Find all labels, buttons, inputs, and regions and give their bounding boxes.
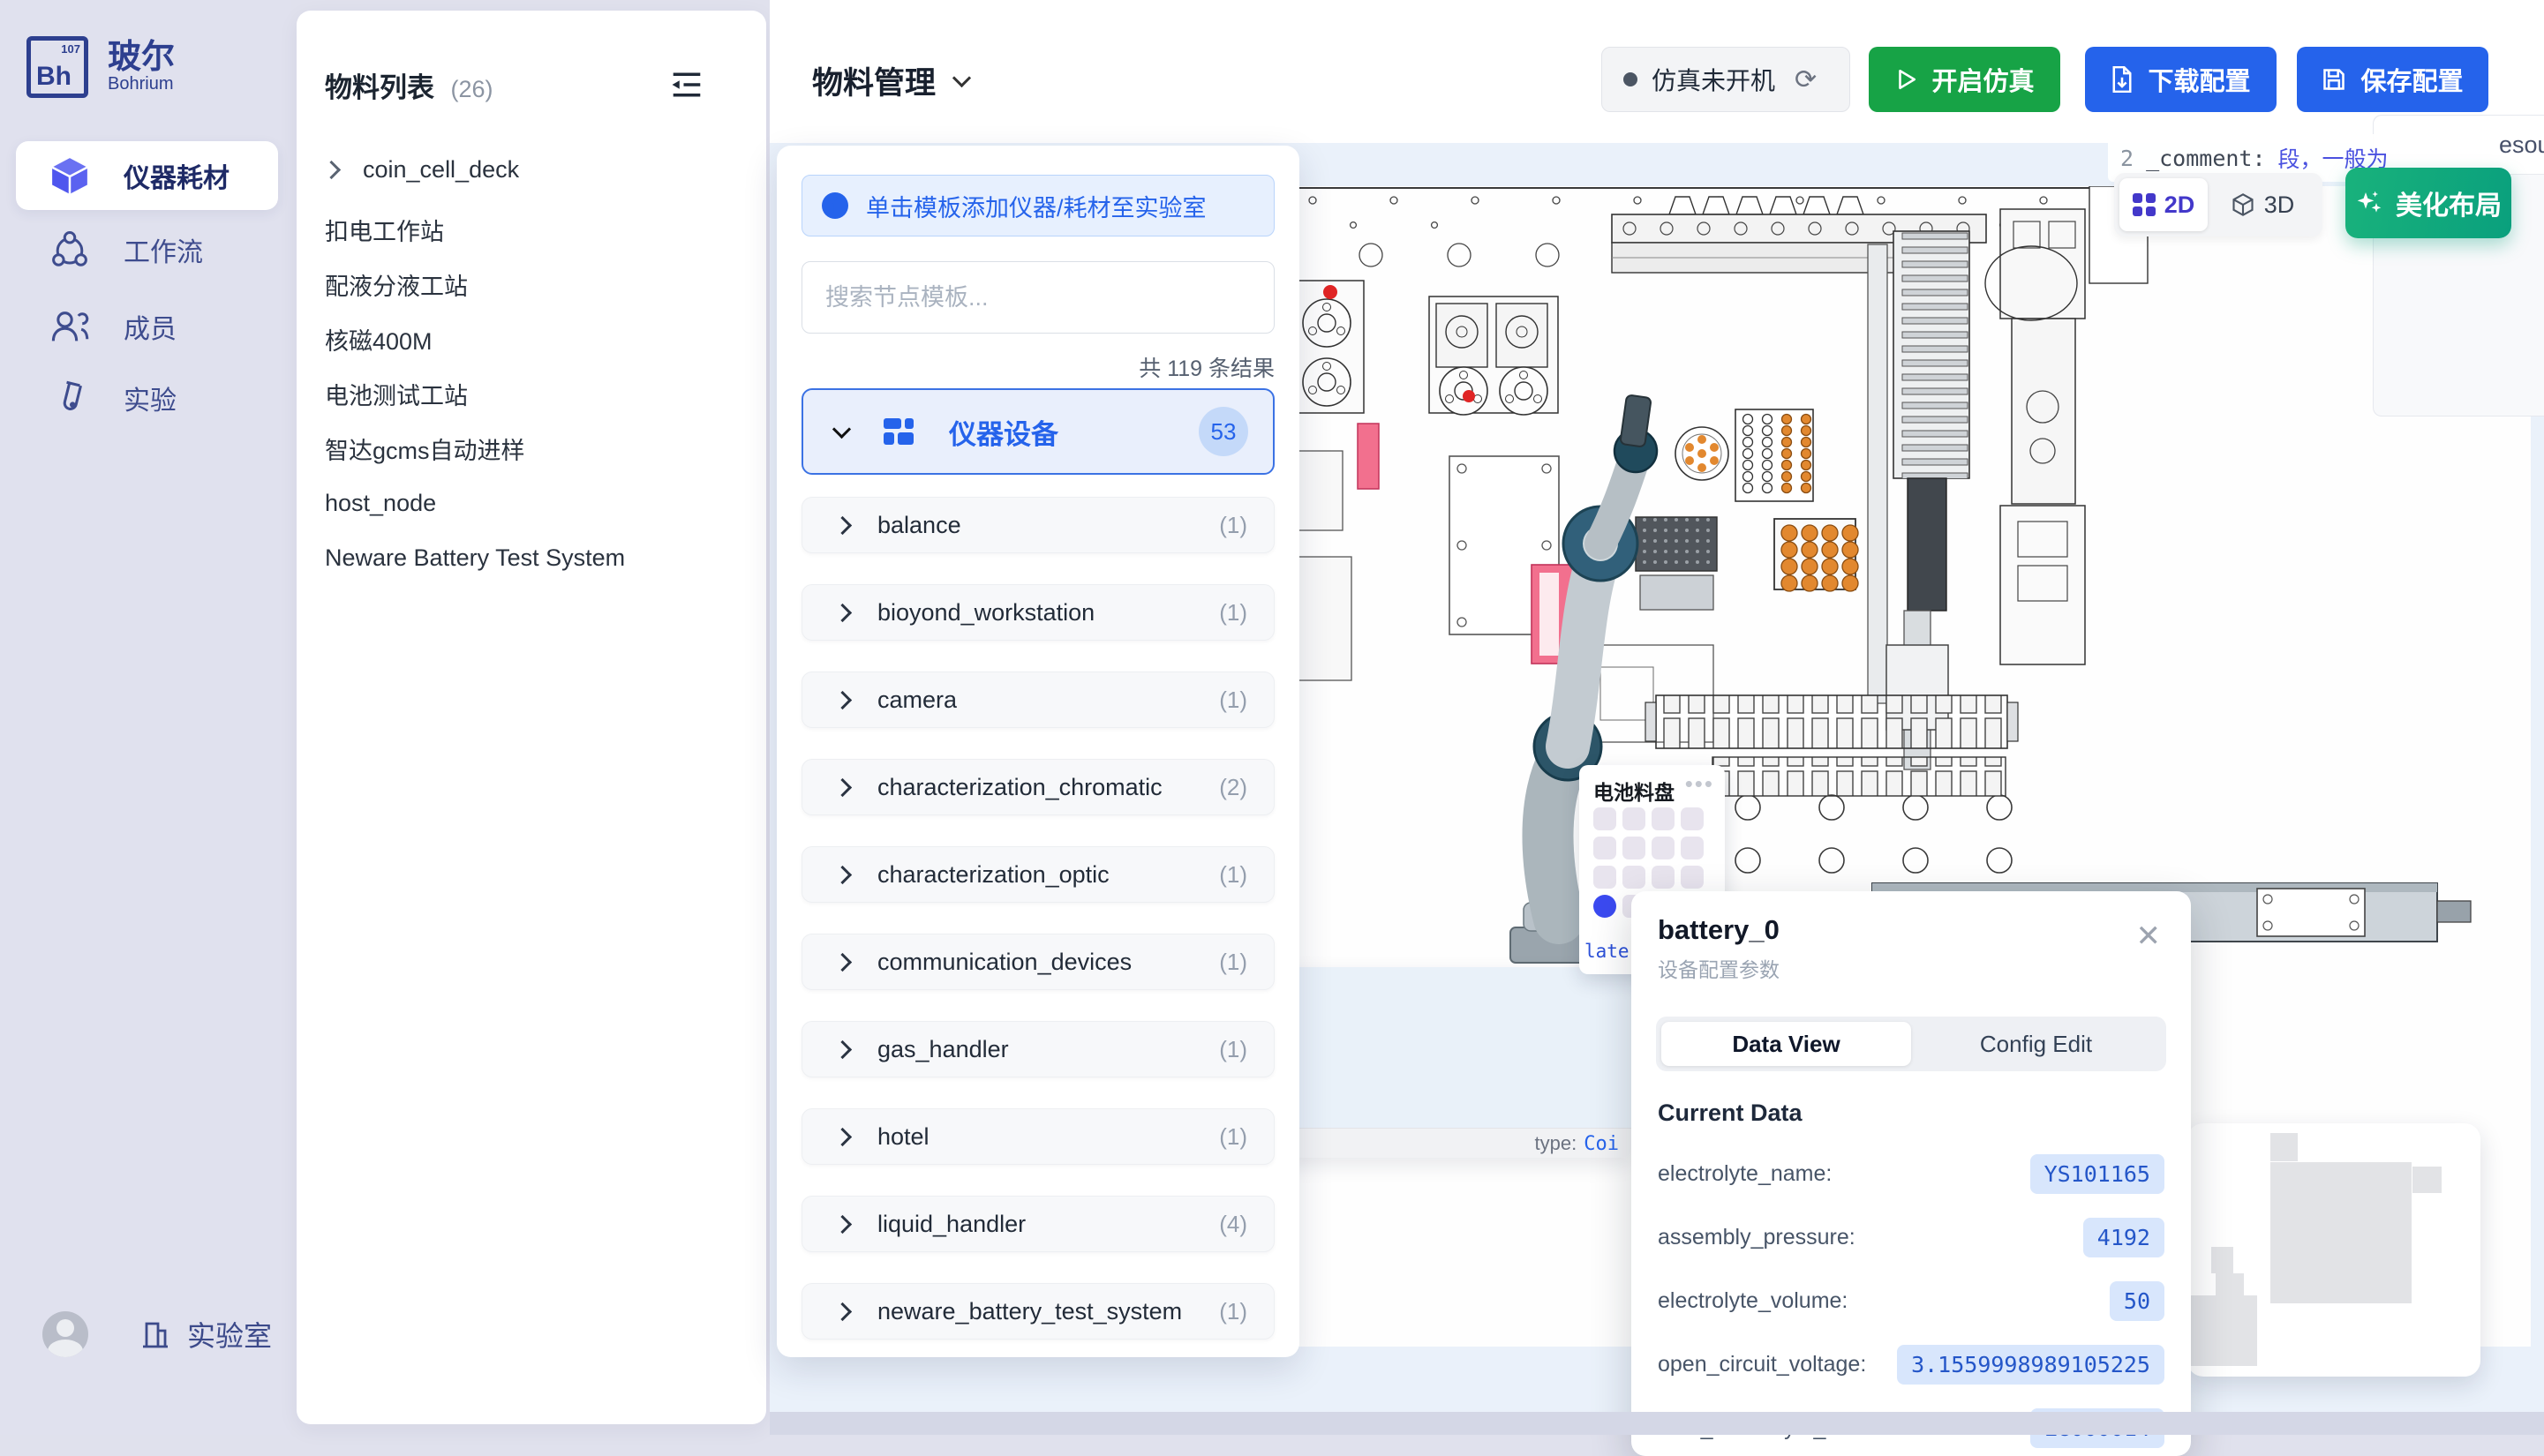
minimap-block <box>2211 1247 2233 1273</box>
view-3d-button[interactable]: 3D <box>2208 191 2317 219</box>
material-label: 配液分液工站 <box>325 267 468 302</box>
brand-name-en: Bohrium <box>108 74 175 94</box>
page-title-dropdown[interactable]: 物料管理 <box>812 58 968 103</box>
materials-title: 物料列表 <box>325 72 434 103</box>
material-item[interactable]: 电池测试工站 <box>300 371 741 417</box>
tray-title: 电池料盘 <box>1593 776 1675 806</box>
result-count: 共 119 条结果 <box>1139 351 1275 383</box>
material-label: host_node <box>325 490 436 517</box>
card-title: battery_0 <box>1658 914 1780 946</box>
material-item[interactable]: 配液分液工站 <box>300 261 741 307</box>
data-row: assembly_pressure:4192 <box>1658 1216 2164 1258</box>
chevron-right-icon <box>322 160 341 178</box>
play-icon <box>1894 68 1917 91</box>
sidebar-item-members[interactable]: 成员 <box>16 292 278 361</box>
cube-3d-icon <box>2231 192 2255 217</box>
sidebar-item-label: 实验 <box>124 379 177 417</box>
logo-symbol: Bh <box>36 62 72 92</box>
template-item[interactable]: bioyond_workstation(1) <box>802 584 1275 641</box>
section-title: Current Data <box>1658 1100 1803 1127</box>
bottom-scrollbar <box>770 1412 2544 1435</box>
tooltip-body <box>1278 967 1631 1128</box>
chevron-right-icon <box>833 690 852 709</box>
sidebar-item-workflow[interactable]: 工作流 <box>16 215 278 284</box>
chevron-right-icon <box>833 865 852 883</box>
minimap-block <box>2270 1162 2412 1303</box>
material-item[interactable]: 核磁400M <box>300 316 741 362</box>
close-icon[interactable]: ✕ <box>2136 921 2162 951</box>
material-item-coin-cell-deck[interactable]: coin_cell_deck <box>300 146 741 192</box>
template-item[interactable]: hotel(1) <box>802 1108 1275 1165</box>
info-icon: i <box>822 192 848 219</box>
tray-slot[interactable] <box>1622 866 1645 889</box>
more-menu-icon[interactable]: ••• <box>1685 770 1714 798</box>
logo-number: 107 <box>61 42 80 56</box>
category-label: 仪器设备 <box>949 412 1058 452</box>
card-subtitle: 设备配置参数 <box>1658 953 1780 983</box>
tray-slot[interactable] <box>1593 837 1616 859</box>
type-value: Coi <box>1584 1133 1619 1155</box>
type-key: type: <box>1535 1132 1577 1155</box>
material-label: 智达gcms自动进样 <box>325 432 525 466</box>
resources-panel-text: esou <box>2499 131 2544 159</box>
tab-config-edit[interactable]: Config Edit <box>1911 1022 2161 1066</box>
sidebar-item-label: 成员 <box>124 307 177 346</box>
template-panel: i 单击模板添加仪器/耗材至实验室 共 119 条结果 仪器设备 53 bala… <box>777 146 1299 1357</box>
lab-switcher[interactable]: 实验室 <box>138 1314 272 1355</box>
category-icon <box>884 418 914 445</box>
brand-name-zh: 玻尔 <box>108 41 175 74</box>
bohrium-logo-icon: 107 Bh <box>26 36 88 98</box>
minimap-block <box>2188 1295 2257 1366</box>
page-title: 物料管理 <box>812 58 936 103</box>
resources-panel-clipped: esou <box>2373 115 2544 417</box>
refresh-icon[interactable]: ⟳ <box>1795 64 1817 95</box>
workflow-icon <box>49 229 90 270</box>
tray-slot[interactable] <box>1593 866 1616 889</box>
lab-label: 实验室 <box>187 1314 272 1355</box>
start-simulation-button[interactable]: 开启仿真 <box>1869 47 2060 112</box>
save-icon <box>2322 67 2346 92</box>
template-item[interactable]: neware_battery_test_system(1) <box>802 1283 1275 1340</box>
node-hover-tooltip: type: Coi <box>1278 967 1631 1158</box>
chevron-right-icon <box>833 952 852 971</box>
material-item[interactable]: host_node <box>300 480 741 526</box>
chevron-right-icon <box>833 1214 852 1233</box>
save-config-button[interactable]: 保存配置 <box>2297 47 2488 112</box>
category-count-badge: 53 <box>1199 407 1248 456</box>
user-avatar[interactable] <box>42 1311 88 1357</box>
material-label: coin_cell_deck <box>363 156 519 184</box>
comment-key: _comment: <box>2146 146 2265 171</box>
minimap-block <box>2216 1273 2244 1295</box>
tray-slot[interactable] <box>1681 866 1704 889</box>
template-item[interactable]: camera(1) <box>802 672 1275 728</box>
value-pill: 50 <box>2110 1281 2164 1321</box>
chevron-right-icon <box>833 1302 852 1320</box>
material-label: 扣电工作站 <box>325 213 444 247</box>
sidebar-item-instruments[interactable]: 仪器耗材 <box>16 141 278 210</box>
tab-data-view[interactable]: Data View <box>1661 1022 1911 1066</box>
simulation-status-pill: 仿真未开机 ⟳ <box>1601 47 1850 112</box>
chevron-down-icon <box>952 69 971 87</box>
tray-slot-selected[interactable] <box>1593 895 1616 918</box>
grid-2d-icon <box>2133 193 2156 216</box>
sidebar-item-label: 仪器耗材 <box>124 156 230 195</box>
data-row: electrolyte_name:YS101165 <box>1658 1152 2164 1195</box>
brand-logo: 107 Bh 玻尔 Bohrium <box>26 32 274 102</box>
info-banner: i 单击模板添加仪器/耗材至实验室 <box>802 175 1275 236</box>
tray-slot[interactable] <box>1622 837 1645 859</box>
status-dot-icon <box>1623 72 1637 86</box>
card-tabs: Data View Config Edit <box>1656 1017 2166 1071</box>
sidebar-item-experiments[interactable]: 实验 <box>16 364 278 432</box>
tray-slot[interactable] <box>1593 807 1616 830</box>
view-2d-button[interactable]: 2D <box>2119 178 2208 231</box>
building-icon <box>138 1317 173 1352</box>
file-download-icon <box>2111 66 2134 93</box>
template-item[interactable]: characterization_chromatic(2) <box>802 759 1275 815</box>
template-item[interactable]: communication_devices(1) <box>802 934 1275 990</box>
sidebar: 107 Bh 玻尔 Bohrium 仪器耗材 工作流 <box>0 0 291 1435</box>
banner-text: 单击模板添加仪器/耗材至实验室 <box>866 189 1207 223</box>
view-mode-toggle: 2D 3D <box>2114 173 2322 236</box>
tray-slot[interactable] <box>1652 837 1675 859</box>
chevron-right-icon <box>833 1039 852 1058</box>
material-label: 电池测试工站 <box>325 377 468 411</box>
value-pill: YS101165 <box>2030 1154 2164 1194</box>
value-pill: 4192 <box>2083 1218 2164 1257</box>
members-icon <box>49 306 90 347</box>
chevron-down-icon <box>832 419 851 438</box>
data-row: open_circuit_voltage:3.1559998989105225 <box>1658 1343 2164 1385</box>
chevron-right-icon <box>833 515 852 534</box>
tray-slot[interactable] <box>1652 866 1675 889</box>
tray-slot[interactable] <box>1652 807 1675 830</box>
tray-slot[interactable] <box>1681 837 1704 859</box>
minimap[interactable] <box>2187 1123 2480 1377</box>
cube-icon <box>49 155 90 196</box>
template-item[interactable]: liquid_handler(4) <box>802 1196 1275 1252</box>
battery-config-card: battery_0 设备配置参数 ✕ Data View Config Edit… <box>1631 891 2191 1456</box>
chevron-right-icon <box>833 777 852 796</box>
template-item[interactable]: balance(1) <box>802 497 1275 553</box>
category-instruments[interactable]: 仪器设备 53 <box>802 388 1275 475</box>
tray-slot[interactable] <box>1622 807 1645 830</box>
materials-panel: 物料列表 (26) coin_cell_deck 扣电工作站 配液分液工站 核磁… <box>297 11 766 1424</box>
minimap-block <box>2270 1133 2298 1161</box>
materials-count: (26) <box>450 76 493 102</box>
experiment-icon <box>49 378 90 418</box>
line-number: 2 <box>2120 146 2134 171</box>
material-item[interactable]: 智达gcms自动进样 <box>300 425 741 471</box>
material-item[interactable]: 扣电工作站 <box>300 206 741 252</box>
search-input[interactable] <box>802 261 1275 334</box>
material-label: Neware Battery Test System <box>325 544 625 572</box>
material-item[interactable]: Neware Battery Test System <box>300 535 741 581</box>
sidebar-item-label: 工作流 <box>124 230 203 269</box>
download-config-button[interactable]: 下载配置 <box>2085 47 2277 112</box>
chevron-right-icon <box>833 1127 852 1145</box>
template-item[interactable]: gas_handler(1) <box>802 1021 1275 1077</box>
tray-footer-text: late <box>1584 941 1630 962</box>
beautify-layout-button[interactable]: 美化布局 <box>2345 168 2511 238</box>
minimap-block <box>2412 1167 2442 1193</box>
tray-slot[interactable] <box>1681 807 1704 830</box>
template-item[interactable]: characterization_optic(1) <box>802 846 1275 903</box>
collapse-panel-icon[interactable] <box>669 69 704 101</box>
sparkles-icon <box>2355 189 2383 217</box>
material-label: 核磁400M <box>325 322 433 356</box>
status-text: 仿真未开机 <box>1652 62 1775 97</box>
chevron-right-icon <box>833 603 852 621</box>
data-row: electrolyte_volume:50 <box>1658 1280 2164 1322</box>
value-pill: 3.1559998989105225 <box>1897 1345 2164 1385</box>
